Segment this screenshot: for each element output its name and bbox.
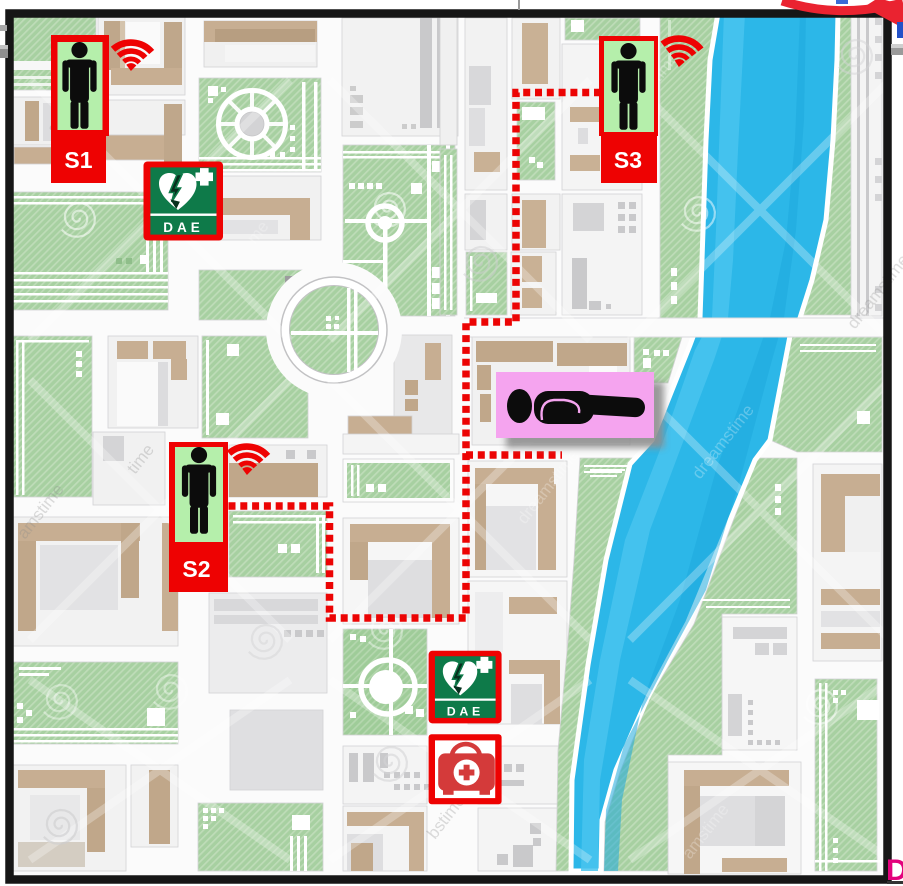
svg-text:S2: S2: [182, 556, 210, 582]
svg-text:S1: S1: [64, 147, 92, 173]
svg-text:S3: S3: [614, 147, 642, 173]
